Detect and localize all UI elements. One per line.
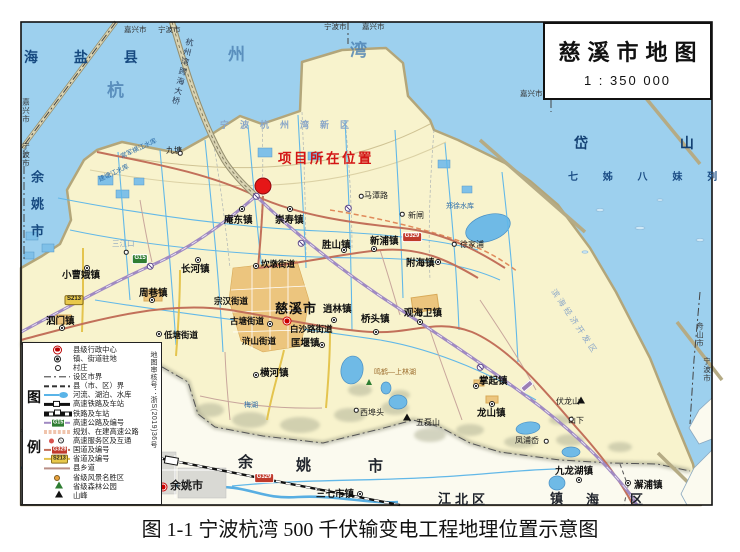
map-scale: 1 : 350 000 (545, 73, 710, 88)
legend-rows: 县级行政中心 镇、街道驻地 村庄 设区市界 县（市、区）界 河流、湖泊、水库 (44, 345, 145, 500)
legend-icon (44, 400, 70, 409)
legend-icon (44, 382, 70, 391)
legend-icon: G329 (44, 446, 70, 455)
legend-badge: G15 (51, 418, 65, 427)
legend-icon: S213 (44, 455, 70, 464)
legend-label: 山峰 (73, 491, 88, 501)
legend-review-number: 地图审核号：浙S(2019)36号 (148, 351, 158, 448)
title-box: 慈溪市地图 1 : 350 000 (543, 22, 712, 100)
legend-char-tu: 图 (27, 387, 42, 407)
legend-icon (44, 491, 70, 500)
legend-side-label: 图 例 (27, 387, 42, 457)
legend-icon (44, 363, 70, 372)
legend-row: 山峰 (44, 491, 145, 500)
legend-icon (44, 409, 70, 418)
legend-icon (44, 436, 70, 445)
legend-icon (44, 427, 70, 436)
legend-icon: G15 (44, 418, 70, 427)
figure-caption: 图 1-1 宁波杭湾 500 千伏输变电工程地理位置示意图 (0, 513, 740, 542)
legend-icon (44, 372, 70, 381)
legend-badge: G329 (51, 446, 68, 455)
legend-char-li: 例 (27, 437, 42, 457)
legend-panel: 图 例 县级行政中心 镇、街道驻地 村庄 设区市界 县（市、区 (22, 342, 162, 505)
legend-row: 镇、街道驻地 (44, 354, 145, 363)
legend-icon (44, 391, 70, 400)
map-figure: 海 盐 县杭州湾岱 山 县七 姊 八 妹 列 岛余姚市嘉兴市宁波市嘉兴市宁波市宁… (0, 0, 740, 552)
map-title: 慈溪市地图 (545, 35, 710, 67)
legend-icon (44, 354, 70, 363)
legend-icon (44, 345, 70, 354)
legend-icon (44, 464, 70, 473)
legend-badge: S213 (51, 455, 68, 464)
